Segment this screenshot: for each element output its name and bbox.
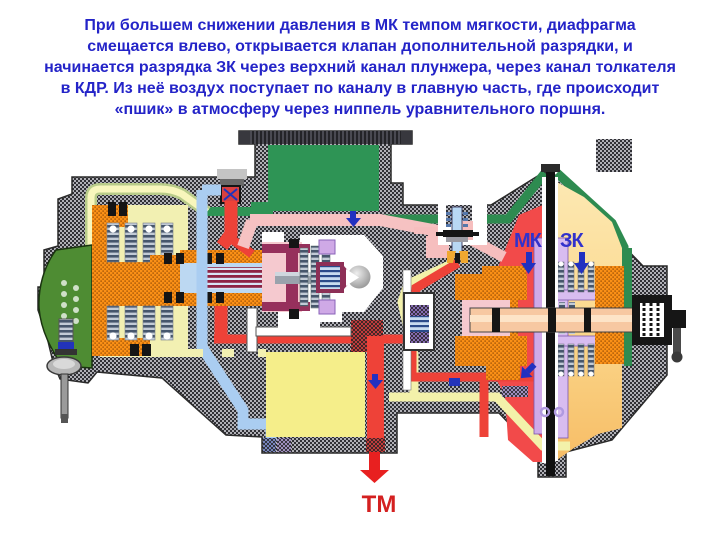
svg-text:МК: МК — [514, 230, 543, 252]
svg-text:ЗК: ЗК — [560, 230, 585, 252]
svg-text:ТМ: ТМ — [362, 491, 397, 518]
